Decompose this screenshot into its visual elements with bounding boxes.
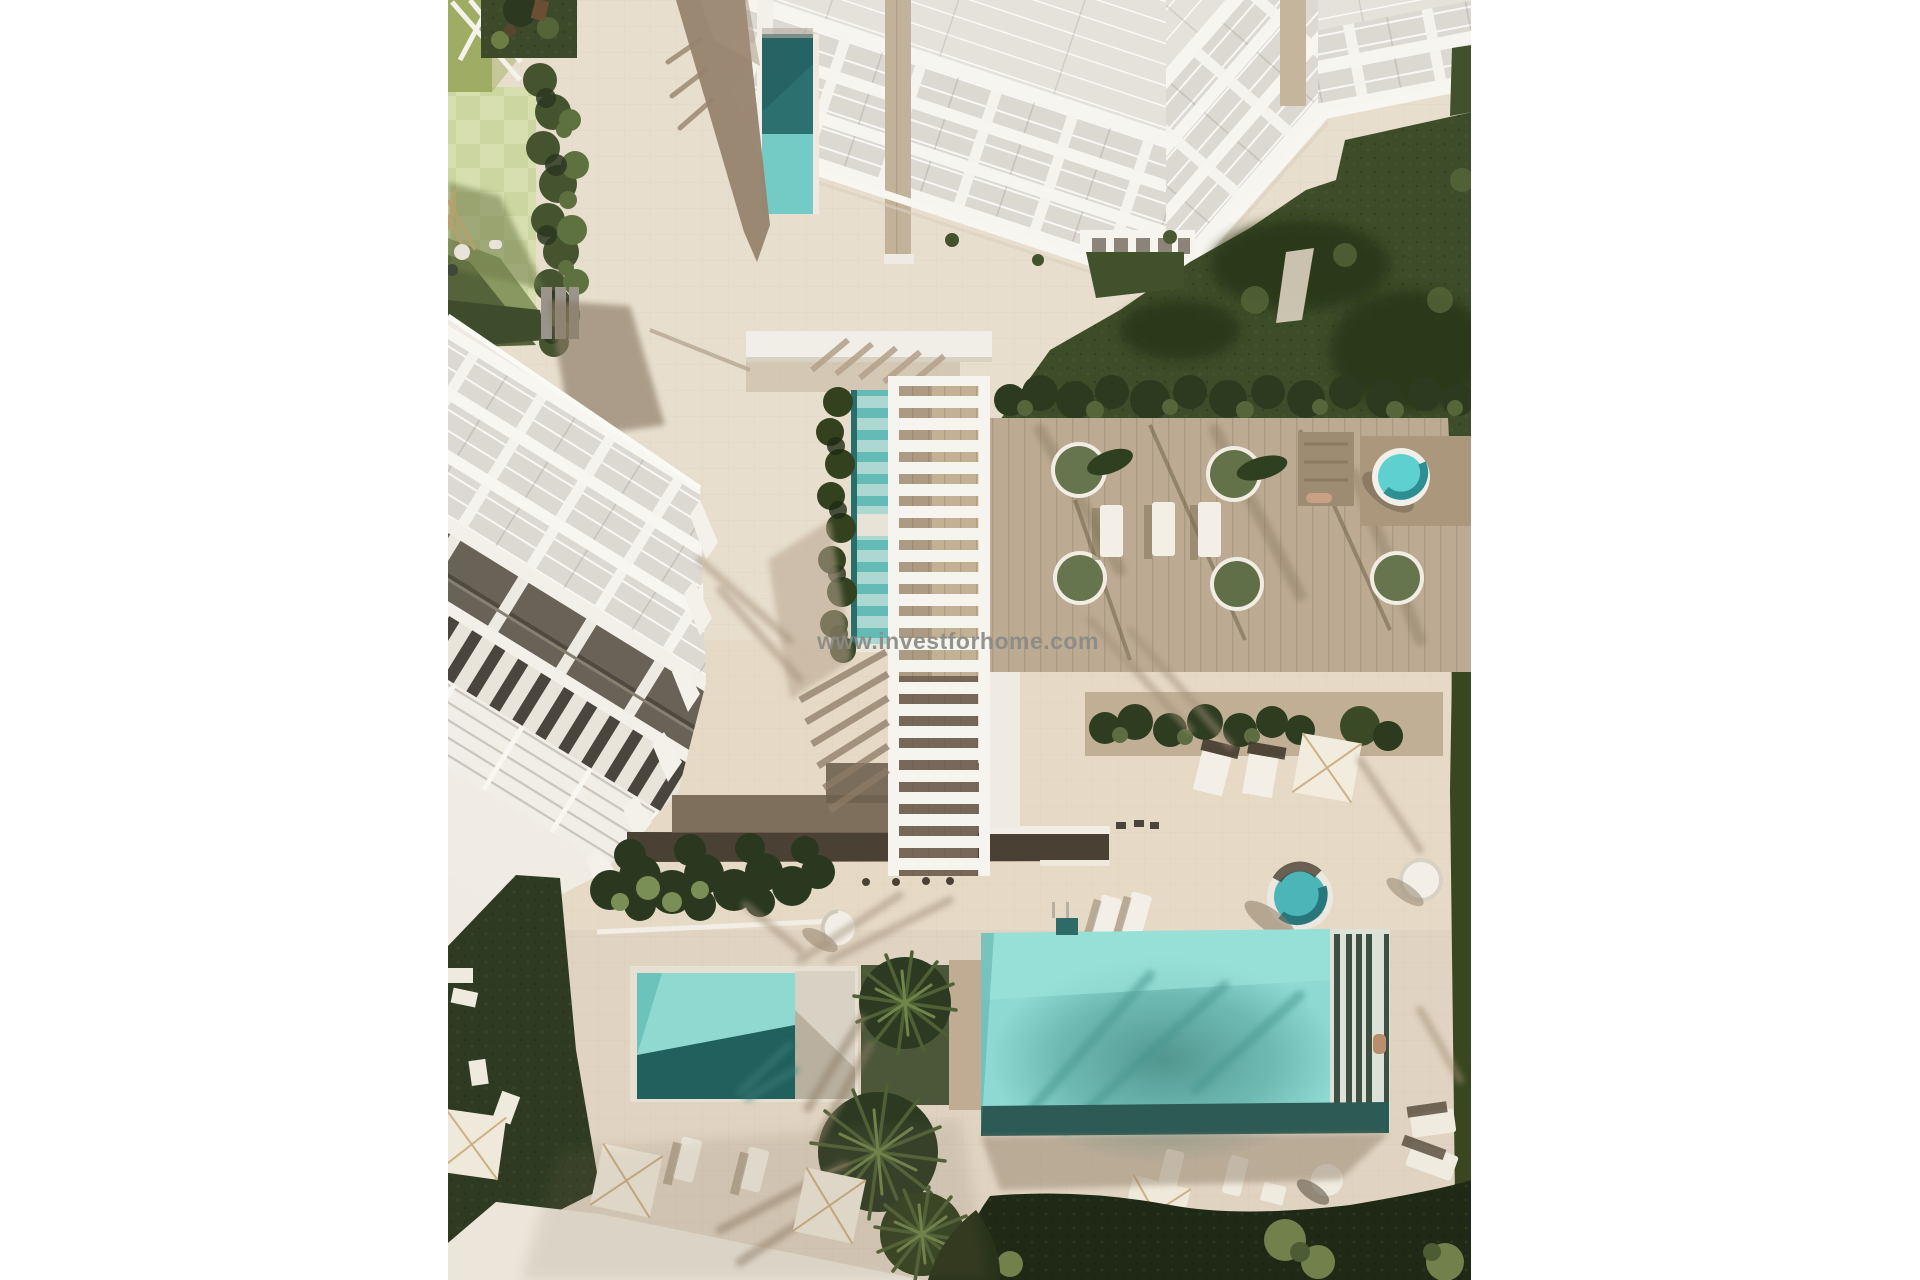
- svg-text:www.investforhome.com: www.investforhome.com: [816, 628, 1099, 654]
